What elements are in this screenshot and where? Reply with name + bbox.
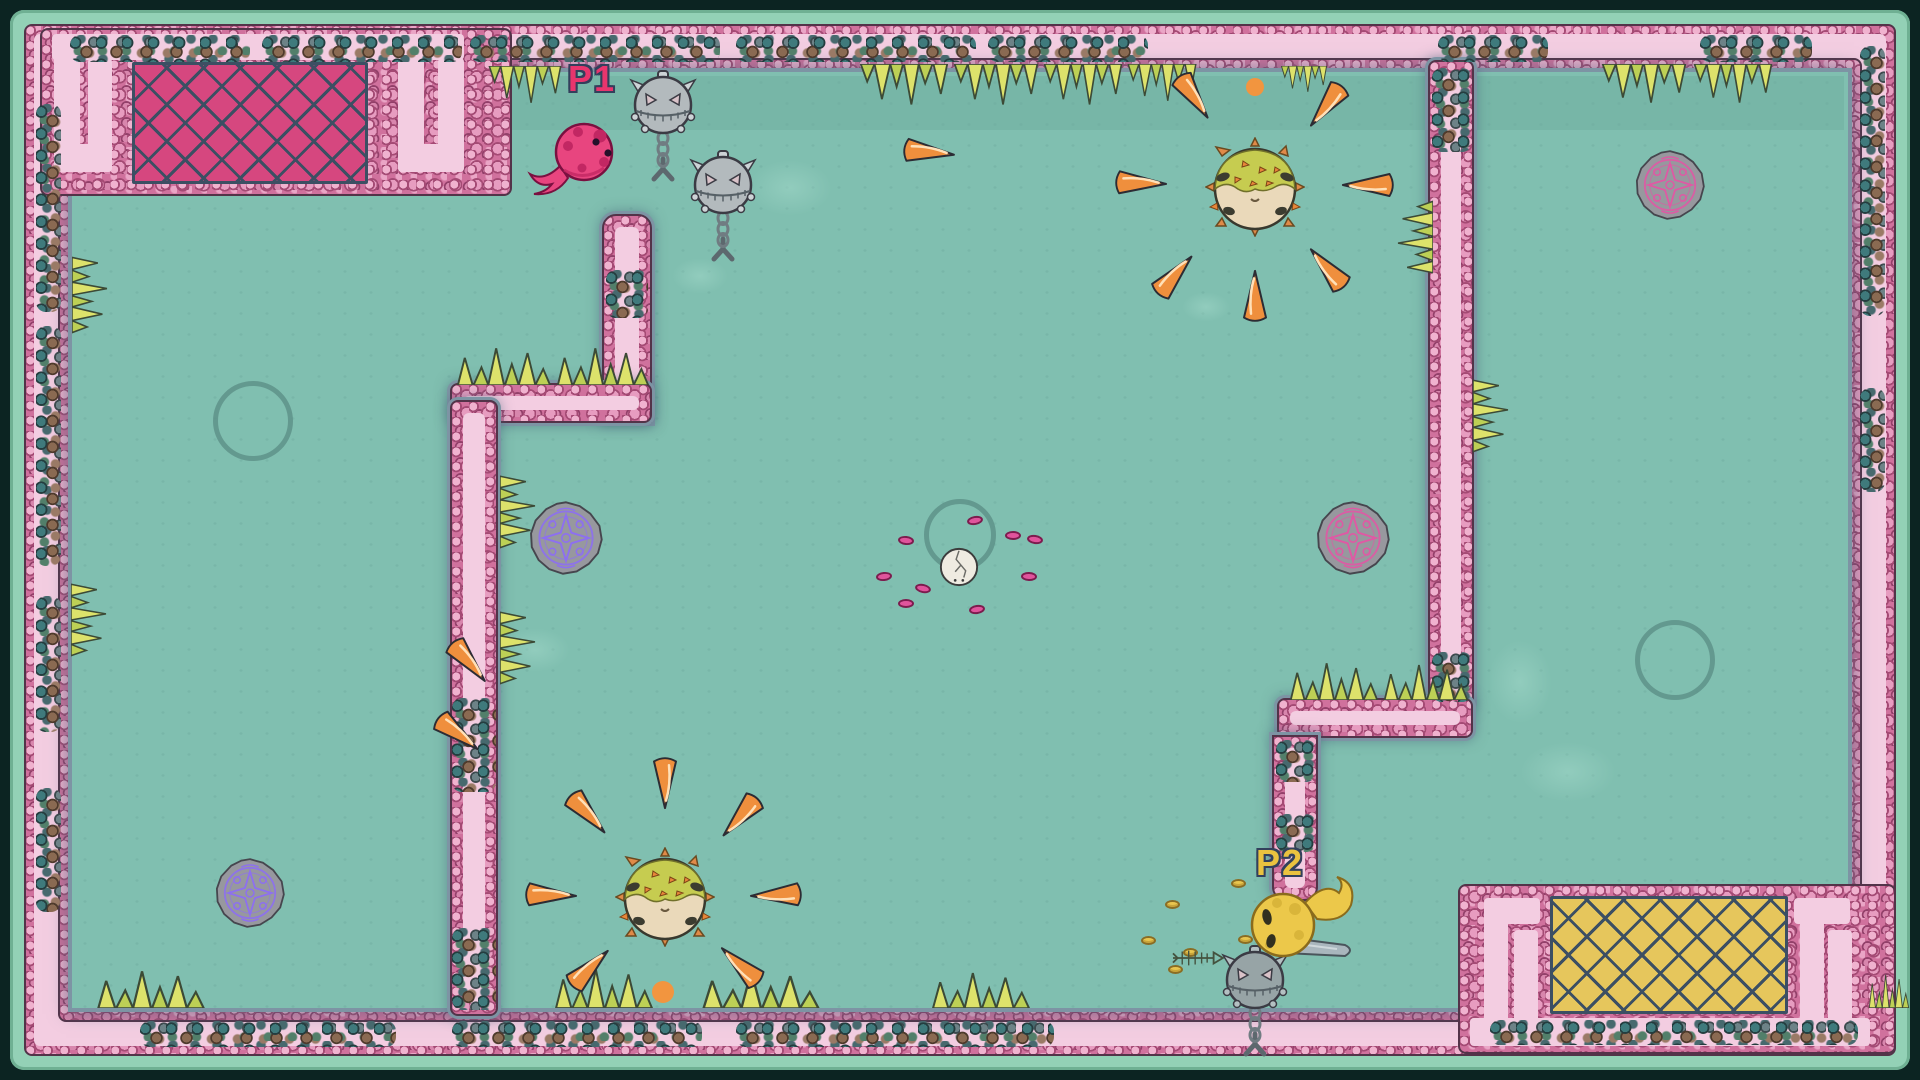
spectator-crowd bbox=[606, 270, 648, 318]
spectator-crowd bbox=[988, 35, 1148, 62]
spawn-circle-marker bbox=[213, 381, 293, 461]
goal-p2-net bbox=[1550, 896, 1788, 1014]
orange-pellet bbox=[652, 981, 674, 1003]
pufferfish-hazard[interactable] bbox=[1205, 137, 1305, 237]
goal-p1-net bbox=[132, 62, 368, 184]
goal-p2-lane bbox=[1794, 898, 1850, 924]
spectator-crowd bbox=[1432, 68, 1472, 152]
spectator-crowd bbox=[1860, 46, 1885, 316]
rune-disc-magenta bbox=[1634, 149, 1706, 221]
puffer-spike bbox=[522, 881, 579, 909]
maze-wall-right-horizontal bbox=[1277, 698, 1473, 738]
player-1-label: P1 bbox=[552, 58, 632, 100]
sea-mine[interactable] bbox=[687, 147, 759, 267]
fish-skeleton bbox=[1168, 946, 1226, 970]
player-2-label: P2 bbox=[1240, 842, 1320, 884]
goal-p2-lane bbox=[1514, 930, 1538, 1022]
cracked-egg-ball[interactable] bbox=[938, 546, 980, 588]
rune-disc-purple bbox=[214, 857, 286, 929]
spectator-crowd bbox=[262, 35, 462, 62]
puffer-spike bbox=[1112, 169, 1169, 197]
grass-tuft bbox=[1600, 64, 1688, 106]
grass-tuft bbox=[1473, 378, 1511, 454]
spectator-crowd bbox=[1276, 740, 1316, 782]
puffer-spike bbox=[749, 881, 806, 909]
spectator-crowd bbox=[36, 788, 61, 912]
grass-tuft bbox=[1868, 972, 1910, 1008]
rune-disc-magenta bbox=[1315, 500, 1391, 576]
spectator-crowd bbox=[140, 1021, 396, 1047]
flower-petal bbox=[1021, 572, 1037, 582]
grass-tuft bbox=[500, 474, 538, 550]
grass-tuft bbox=[1042, 64, 1124, 108]
spectator-crowd bbox=[736, 1021, 1054, 1047]
goal-p2-lane bbox=[1484, 898, 1540, 924]
spectator-crowd bbox=[452, 1021, 702, 1047]
puffer-spike bbox=[652, 754, 678, 810]
grass-tuft bbox=[1288, 660, 1380, 700]
field-splotch bbox=[1520, 742, 1616, 802]
spectator-crowd bbox=[36, 104, 61, 312]
rune-disc-purple bbox=[528, 500, 604, 576]
game-arena: P1P2 bbox=[0, 0, 1920, 1080]
wall-inner-channel bbox=[1290, 711, 1460, 725]
spawn-circle-marker bbox=[1635, 620, 1715, 700]
goal-p1-lane bbox=[88, 58, 112, 172]
spectator-crowd bbox=[1700, 35, 1812, 62]
grass-tuft bbox=[455, 345, 553, 385]
grass-tuft bbox=[952, 64, 1040, 108]
player-1-fish[interactable] bbox=[520, 108, 632, 196]
grass-tuft bbox=[930, 970, 1032, 1008]
grass-tuft bbox=[1395, 199, 1433, 275]
coin bbox=[1165, 900, 1180, 909]
grass-tuft bbox=[71, 582, 109, 658]
spectator-crowd bbox=[36, 596, 61, 732]
grass-tuft bbox=[858, 64, 950, 108]
grass-tuft bbox=[1382, 662, 1470, 700]
spectator-crowd bbox=[1860, 388, 1885, 492]
grass-tuft bbox=[72, 255, 110, 335]
puffer-spike bbox=[1242, 269, 1268, 325]
spectator-crowd bbox=[736, 35, 976, 62]
pufferfish-hazard[interactable] bbox=[615, 847, 715, 947]
goal-p1-lane bbox=[438, 58, 464, 172]
wall-inner-channel bbox=[1441, 73, 1461, 697]
spectator-crowd bbox=[452, 928, 496, 1010]
flower-petal bbox=[898, 599, 914, 608]
grass-tuft bbox=[1692, 64, 1774, 106]
goal-p2-lane bbox=[1828, 930, 1852, 1022]
field-splotch bbox=[1182, 292, 1230, 322]
player-2-fish[interactable] bbox=[1225, 873, 1365, 978]
spectator-crowd bbox=[1438, 35, 1548, 62]
field-splotch bbox=[748, 160, 832, 216]
orange-pellet bbox=[1246, 78, 1264, 96]
field-splotch bbox=[1488, 640, 1552, 724]
spectator-crowd bbox=[1490, 1020, 1858, 1045]
grass-tuft bbox=[500, 610, 538, 686]
grass-tuft bbox=[555, 345, 651, 385]
spectator-crowd bbox=[70, 35, 250, 62]
grass-tuft bbox=[95, 968, 207, 1008]
puffer-spike bbox=[1341, 172, 1397, 198]
spectator-crowd bbox=[36, 326, 61, 566]
flower-petal bbox=[1005, 531, 1021, 540]
maze-wall-right-vertical-top bbox=[1428, 60, 1474, 710]
coin bbox=[1141, 936, 1156, 945]
